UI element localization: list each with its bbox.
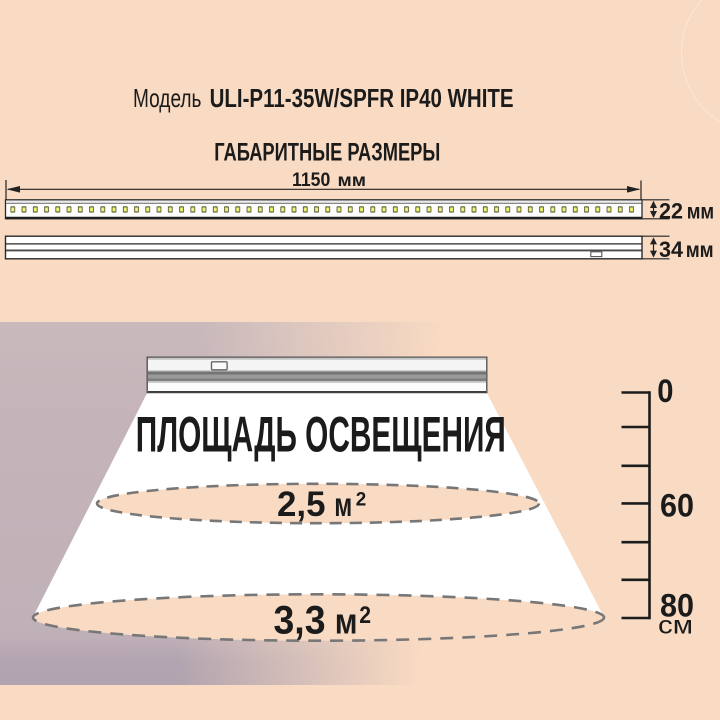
svg-text:ПЛОЩАДЬ ОСВЕЩЕНИЯ: ПЛОЩАДЬ ОСВЕЩЕНИЯ <box>136 406 506 463</box>
svg-text:мм: мм <box>686 239 714 262</box>
svg-text:34: 34 <box>659 237 683 262</box>
svg-text:мм: мм <box>338 170 367 190</box>
svg-text:2: 2 <box>356 488 367 510</box>
svg-text:см: см <box>658 612 693 639</box>
svg-text:2: 2 <box>359 602 371 629</box>
svg-text:ULI-P11-35W/SPFR IP40 WHITE: ULI-P11-35W/SPFR IP40 WHITE <box>210 83 514 113</box>
svg-text:60: 60 <box>660 487 694 524</box>
svg-text:мм: мм <box>687 201 715 224</box>
svg-text:Модель: Модель <box>133 83 202 113</box>
svg-text:3,3: 3,3 <box>274 599 326 643</box>
svg-text:м: м <box>335 601 358 642</box>
svg-text:22: 22 <box>659 199 683 224</box>
svg-text:ГАБАРИТНЫЕ РАЗМЕРЫ: ГАБАРИТНЫЕ РАЗМЕРЫ <box>214 139 440 167</box>
svg-text:1150: 1150 <box>292 169 330 191</box>
svg-text:м: м <box>334 487 352 524</box>
svg-text:2,5: 2,5 <box>277 485 326 524</box>
svg-text:0: 0 <box>657 372 673 409</box>
